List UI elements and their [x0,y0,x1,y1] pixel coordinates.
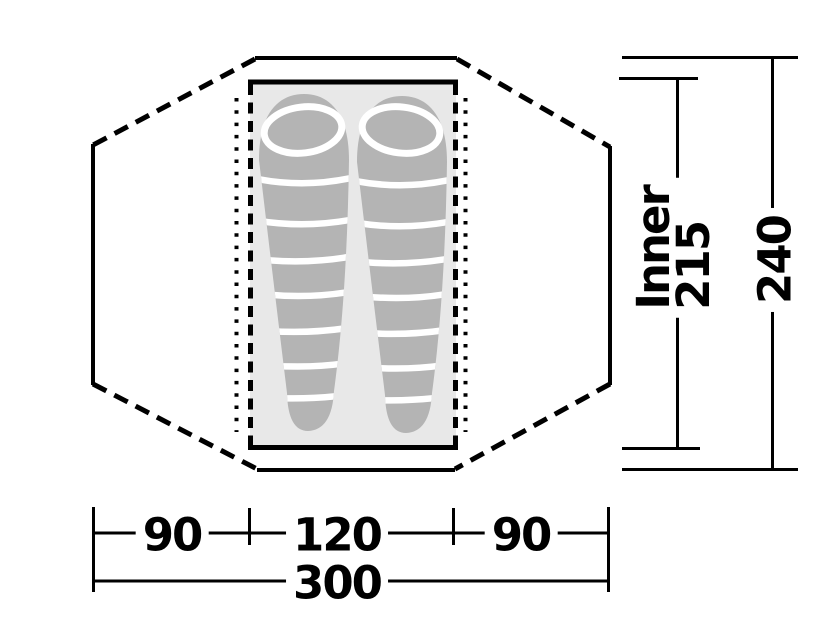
inner-height-label: Inner 215 [632,178,716,318]
width-segment-label-right: 90 [485,513,558,558]
total-width-label: 300 [286,561,388,606]
inner-height-value: 215 [674,186,714,310]
outer-height-label: 240 [751,208,800,312]
width-segment-label-left: 90 [136,513,209,558]
tent-floorplan-diagram: 90 120 90 300 Inner 215 240 [0,0,830,630]
width-segment-label-middle: 120 [286,513,388,558]
